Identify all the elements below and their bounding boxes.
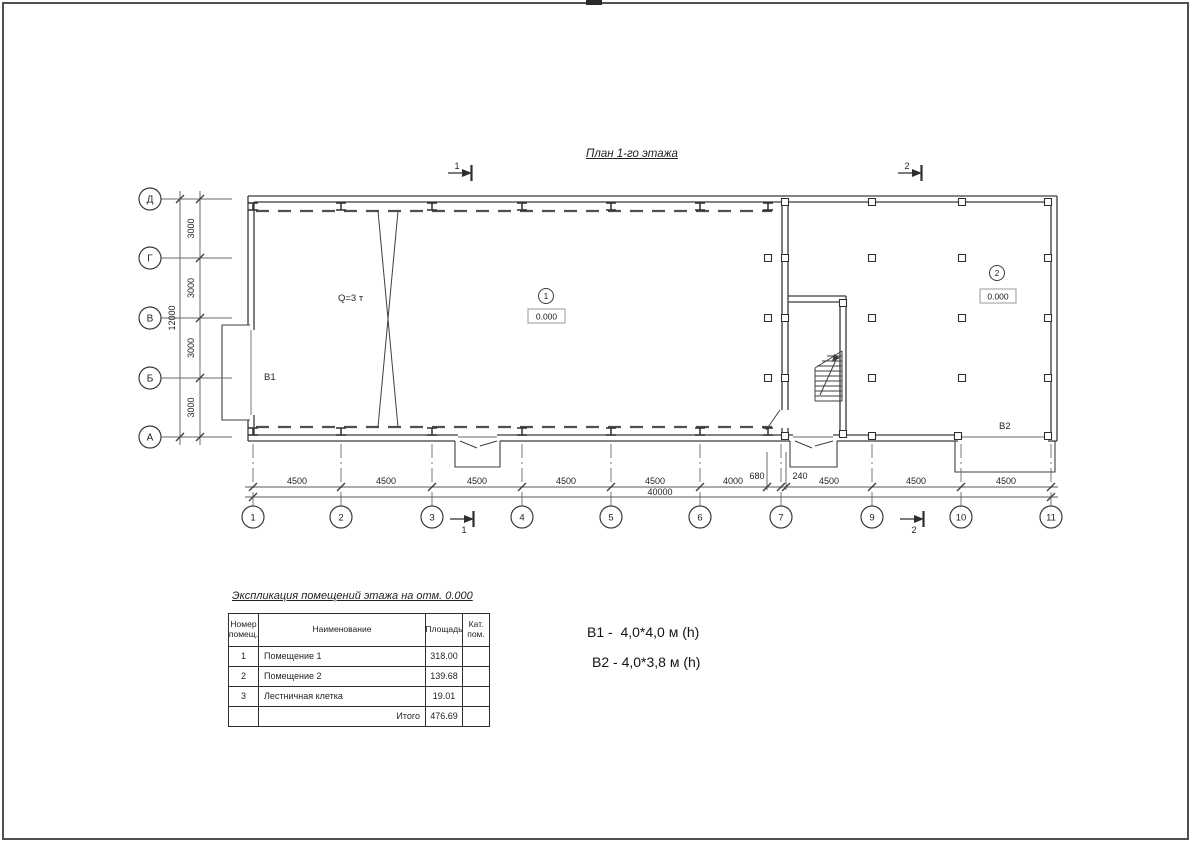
row-name: Лестничная клетка	[259, 687, 426, 707]
gate2-label: В2	[999, 421, 1011, 432]
room2-marker: 2 0.000	[980, 266, 1016, 304]
dim-left: 3000	[186, 278, 196, 298]
gate1-ramp	[222, 325, 250, 420]
explication-block: Экспликация помещений этажа на отм. 0.00…	[228, 590, 490, 727]
wall-opening-lines	[251, 330, 1048, 437]
gate2-ramp	[955, 441, 1055, 472]
col-axis-label: 9	[869, 513, 874, 524]
total-row-spacer	[229, 707, 259, 726]
row-number: 1	[229, 647, 259, 667]
col-axis-label: 3	[429, 513, 434, 524]
col-header-number: Номер помещ.	[229, 614, 259, 647]
col-axis-label: 4	[519, 513, 524, 524]
square-columns	[765, 199, 1052, 440]
row-name: Помещение 1	[259, 647, 426, 667]
row-axis-label: В	[147, 314, 154, 325]
crane-capacity-label: Q=3 т	[338, 293, 364, 304]
row-axis-label: Г	[147, 254, 153, 265]
row-area: 139.68	[426, 667, 463, 687]
gate2-legend: В2 - 4,0*3,8 м (h)	[592, 654, 700, 670]
col-axis-label: 7	[778, 513, 783, 524]
ibeam-columns	[248, 203, 773, 435]
dim-bottom: 4500	[819, 476, 839, 486]
dim-bottom: 4500	[906, 476, 926, 486]
row-category	[463, 647, 489, 667]
svg-text:1: 1	[454, 161, 459, 171]
row-area: 19.01	[426, 687, 463, 707]
svg-text:1: 1	[544, 291, 549, 301]
row-area: 318.00	[426, 647, 463, 667]
dim-bottom: 4500	[467, 476, 487, 486]
dim-left: 3000	[186, 397, 196, 417]
section-mark-2-top: 2	[898, 161, 922, 181]
dim-bottom: 4500	[287, 476, 307, 486]
dim-left: 3000	[186, 338, 196, 358]
svg-text:2: 2	[995, 268, 1000, 278]
col-header-area: Площадь	[426, 614, 463, 647]
entrance-porch-1	[455, 441, 500, 467]
total-category-spacer	[463, 707, 489, 726]
gate1-legend: В1 - 4,0*4,0 м (h)	[587, 624, 699, 640]
room1-marker: 1 0.000	[528, 289, 565, 324]
col-axis-label: 1	[250, 513, 255, 524]
col-header-name: Наименование	[259, 614, 426, 647]
dim-bottom: 4500	[376, 476, 396, 486]
row-axis-label: Д	[147, 195, 154, 206]
col-axis-label: 11	[1046, 513, 1056, 524]
col-axis-label: 5	[608, 513, 613, 524]
dim-bottom-total: 40000	[647, 487, 672, 497]
explication-table: Номер помещ. Наименование Площадь Кат. п…	[228, 613, 490, 727]
row-axis-label: А	[147, 433, 154, 444]
dim-left: 3000	[186, 218, 196, 238]
room2-elevation: 0.000	[987, 292, 1009, 302]
col-axis-label: 6	[697, 513, 702, 524]
row-number: 2	[229, 667, 259, 687]
dim-bottom: 680	[749, 471, 764, 481]
total-label: Итого	[259, 707, 426, 726]
dim-left-total: 12000	[167, 305, 177, 330]
explication-title: Экспликация помещений этажа на отм. 0.00…	[232, 590, 490, 602]
dim-bottom: 240	[792, 471, 807, 481]
gate1-label: В1	[264, 372, 276, 383]
row-category	[463, 667, 489, 687]
dim-bottom: 4500	[996, 476, 1016, 486]
section-mark-1-bottom: 1	[450, 511, 474, 535]
crane-runway-dashed-lines	[256, 211, 772, 427]
section-mark-1-top: 1	[448, 161, 472, 181]
row-axis-label: Б	[147, 374, 154, 385]
row-name: Помещение 2	[259, 667, 426, 687]
drawing-sheet: { "sheet": { "title": "План 1-го этажа" …	[0, 0, 1191, 842]
col-axis-label: 10	[956, 513, 967, 524]
svg-text:1: 1	[461, 525, 466, 535]
col-axis-label: 2	[338, 513, 343, 524]
room1-elevation: 0.000	[536, 312, 558, 322]
section-mark-2-bottom: 2	[900, 511, 924, 535]
dim-bottom: 4500	[645, 476, 665, 486]
total-value: 476.69	[426, 707, 463, 726]
svg-text:2: 2	[911, 525, 916, 535]
row-number: 3	[229, 687, 259, 707]
building-walls	[248, 196, 1057, 441]
col-axis-bubbles	[242, 506, 1062, 528]
svg-text:2: 2	[904, 161, 909, 171]
crane-cross-symbol	[378, 211, 398, 427]
door-swings	[460, 410, 833, 448]
row-category	[463, 687, 489, 707]
dim-bottom: 4000	[723, 476, 743, 486]
col-header-category: Кат. пом.	[463, 614, 489, 647]
floor-plan-drawing: Д Г В Б А 3000 3000 3000 3000 12000 4500…	[0, 0, 1191, 842]
entrance-porch-2	[790, 441, 837, 467]
dim-bottom: 4500	[556, 476, 576, 486]
